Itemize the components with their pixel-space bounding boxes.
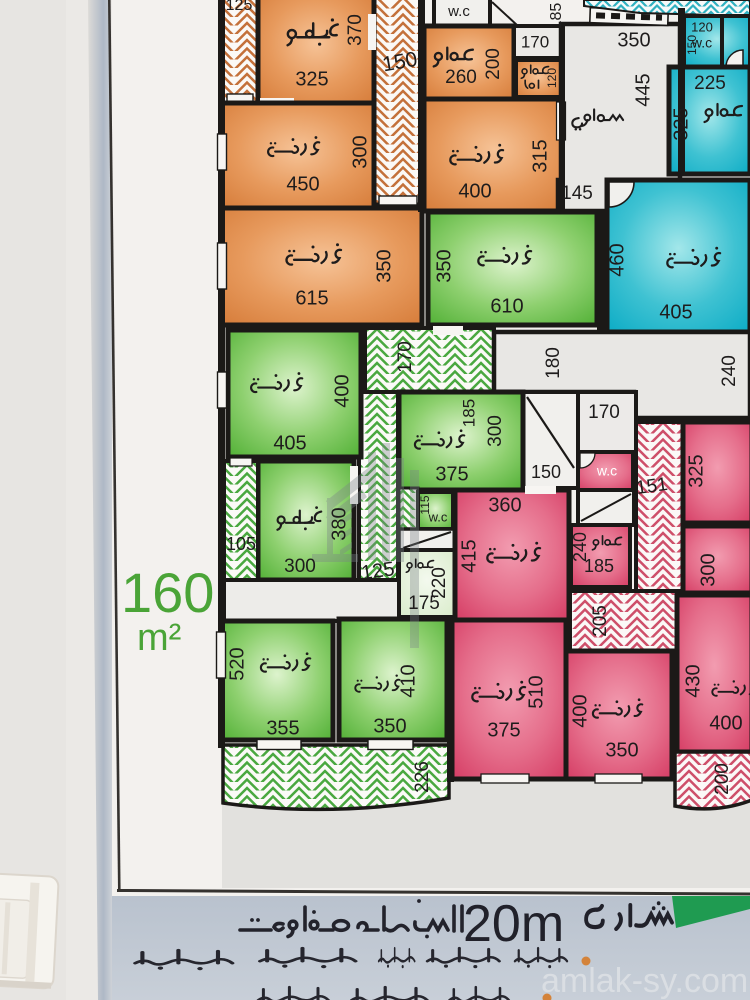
svg-text:175: 175 xyxy=(408,593,440,614)
svg-text:170: 170 xyxy=(395,341,416,373)
svg-text:315: 315 xyxy=(529,139,551,172)
svg-text:450: 450 xyxy=(286,173,319,195)
svg-text:150: 150 xyxy=(531,462,561,482)
svg-text:355: 355 xyxy=(266,717,299,739)
svg-text:510: 510 xyxy=(525,675,547,708)
svg-text:180: 180 xyxy=(543,347,564,379)
svg-text:400: 400 xyxy=(458,180,491,202)
svg-text:170: 170 xyxy=(588,402,620,423)
svg-text:240: 240 xyxy=(719,355,740,387)
svg-text:350: 350 xyxy=(433,249,455,282)
svg-text:370: 370 xyxy=(345,14,366,46)
svg-text:160: 160 xyxy=(121,561,214,624)
svg-text:520: 520 xyxy=(226,647,248,680)
svg-text:120: 120 xyxy=(545,68,559,88)
svg-text:325: 325 xyxy=(295,68,328,90)
svg-text:226: 226 xyxy=(412,761,433,793)
svg-text:260: 260 xyxy=(445,67,477,88)
svg-text:205: 205 xyxy=(590,605,611,637)
svg-text:375: 375 xyxy=(435,463,468,485)
svg-text:170: 170 xyxy=(521,32,549,51)
svg-text:300: 300 xyxy=(284,556,316,577)
svg-text:325: 325 xyxy=(670,107,692,140)
svg-text:430: 430 xyxy=(682,664,704,697)
svg-text:325: 325 xyxy=(685,454,707,487)
svg-text:200: 200 xyxy=(712,763,733,795)
svg-text:185: 185 xyxy=(584,556,614,576)
svg-text:20m: 20m xyxy=(463,895,564,953)
svg-text:350: 350 xyxy=(617,29,650,51)
svg-text:350: 350 xyxy=(605,739,638,761)
svg-text:350: 350 xyxy=(373,715,406,737)
svg-text:105: 105 xyxy=(226,534,256,554)
svg-text:400: 400 xyxy=(709,712,742,734)
svg-text:405: 405 xyxy=(659,301,692,323)
svg-text:400: 400 xyxy=(569,694,591,727)
svg-text:460: 460 xyxy=(606,243,628,276)
svg-text:445: 445 xyxy=(632,73,654,106)
svg-text:185: 185 xyxy=(548,3,565,30)
svg-text:375: 375 xyxy=(487,719,520,741)
svg-text:610: 610 xyxy=(490,295,523,317)
svg-text:300: 300 xyxy=(349,135,371,168)
svg-text:amlak-sy.com: amlak-sy.com xyxy=(541,962,748,1000)
svg-text:120: 120 xyxy=(691,19,713,34)
svg-text:410: 410 xyxy=(397,664,419,697)
svg-text:185: 185 xyxy=(459,399,478,427)
svg-text:m²: m² xyxy=(137,617,181,659)
svg-text:w.c: w.c xyxy=(596,463,617,479)
svg-text:300: 300 xyxy=(485,415,506,447)
svg-text:405: 405 xyxy=(273,432,306,454)
svg-text:125: 125 xyxy=(360,558,396,584)
svg-text:380: 380 xyxy=(328,507,350,540)
svg-text:151: 151 xyxy=(635,474,669,499)
svg-text:300: 300 xyxy=(697,553,719,586)
svg-text:360: 360 xyxy=(488,494,521,516)
svg-text:400: 400 xyxy=(331,374,353,407)
svg-text:150: 150 xyxy=(685,35,699,55)
svg-text:615: 615 xyxy=(295,287,328,309)
svg-text:225: 225 xyxy=(694,73,726,94)
svg-text:125: 125 xyxy=(226,0,253,14)
svg-text:145: 145 xyxy=(561,183,593,204)
svg-text:350: 350 xyxy=(373,249,395,282)
svg-text:w.c: w.c xyxy=(428,509,448,524)
svg-text:w.c: w.c xyxy=(447,3,470,20)
svg-text:415: 415 xyxy=(458,539,480,572)
svg-text:200: 200 xyxy=(483,48,504,80)
